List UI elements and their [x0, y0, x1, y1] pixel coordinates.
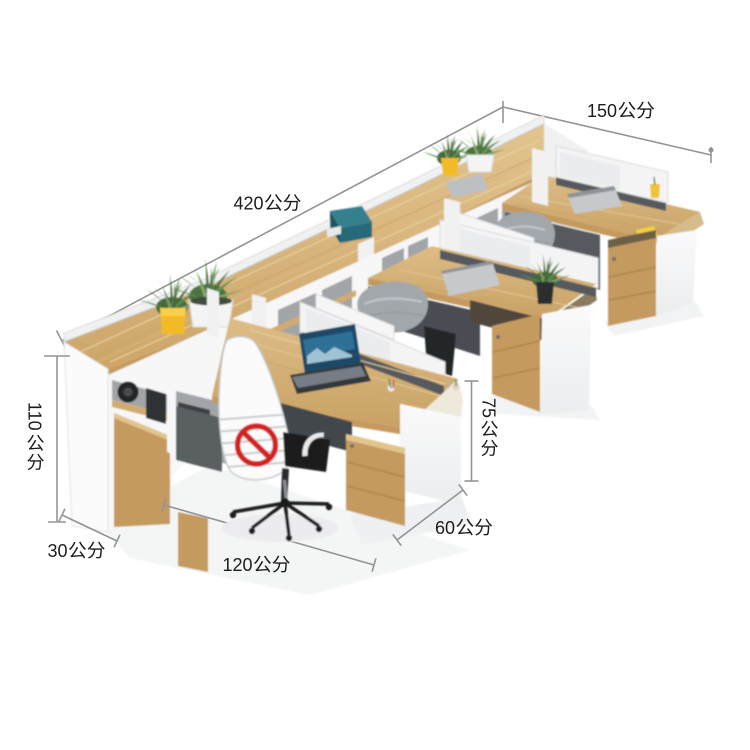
svg-text:120: 120	[223, 555, 253, 575]
svg-text:150: 150	[587, 101, 617, 121]
svg-text:75: 75	[479, 398, 499, 418]
svg-text:420: 420	[234, 194, 264, 214]
svg-text:30: 30	[48, 541, 68, 561]
svg-text:110: 110	[25, 402, 45, 431]
svg-text:60: 60	[435, 518, 455, 538]
